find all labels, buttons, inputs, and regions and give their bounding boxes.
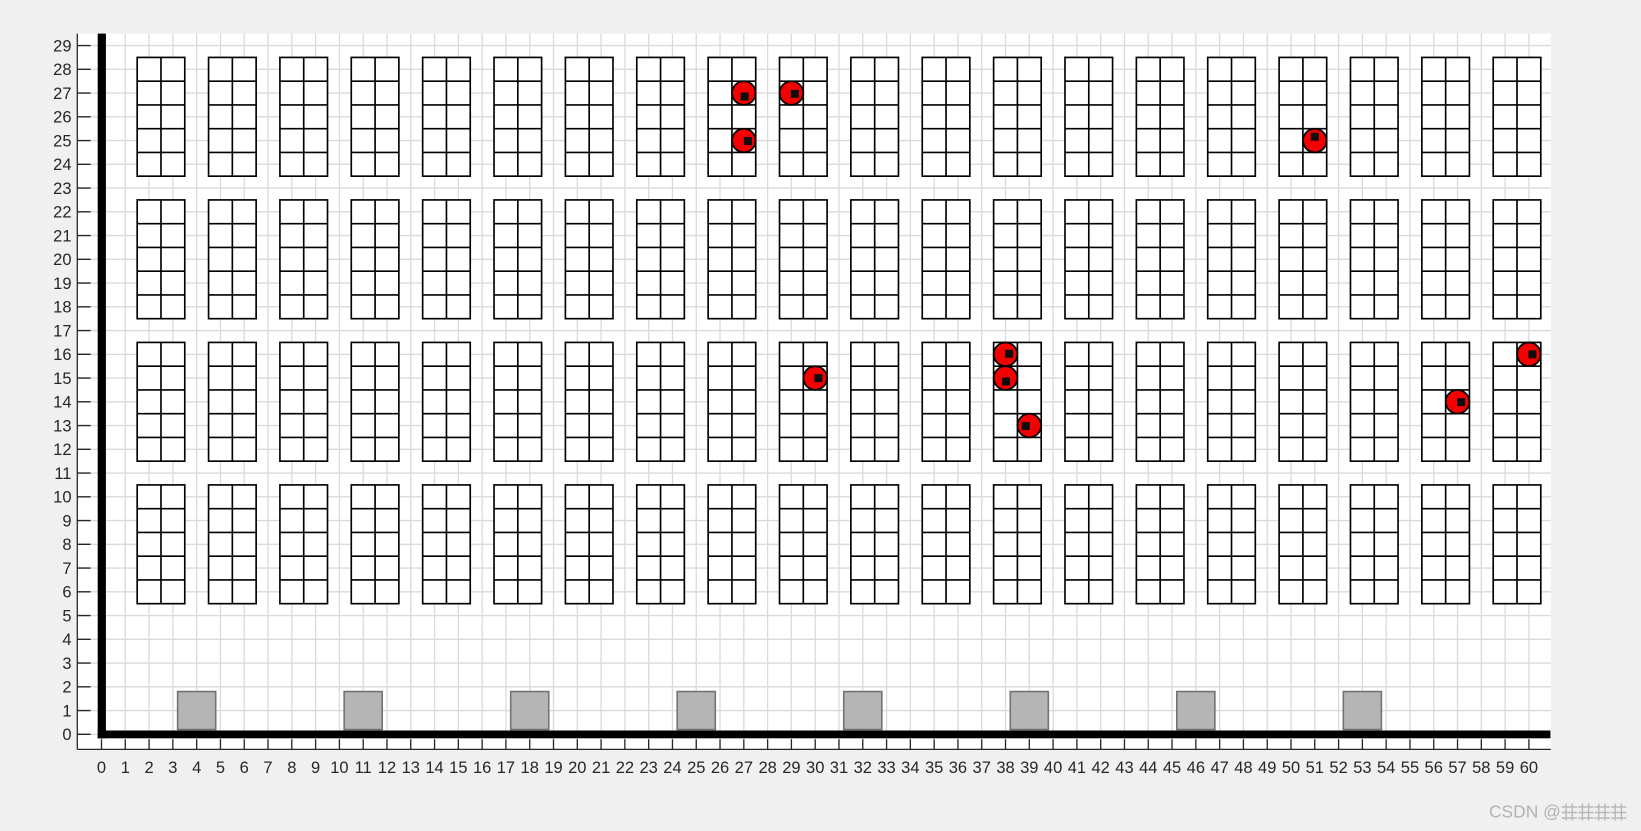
- svg-text:28: 28: [758, 759, 776, 777]
- svg-text:24: 24: [663, 759, 681, 777]
- svg-text:14: 14: [53, 394, 71, 412]
- svg-text:29: 29: [53, 37, 71, 55]
- svg-text:60: 60: [1520, 759, 1538, 777]
- svg-text:7: 7: [62, 560, 71, 578]
- svg-text:52: 52: [1329, 759, 1347, 777]
- svg-text:10: 10: [53, 489, 71, 507]
- svg-text:13: 13: [402, 759, 420, 777]
- svg-text:35: 35: [925, 759, 943, 777]
- svg-text:43: 43: [1115, 759, 1133, 777]
- svg-text:54: 54: [1377, 759, 1395, 777]
- svg-text:59: 59: [1496, 759, 1514, 777]
- svg-text:12: 12: [53, 441, 71, 459]
- svg-text:31: 31: [830, 759, 848, 777]
- svg-text:45: 45: [1163, 759, 1181, 777]
- svg-text:19: 19: [53, 275, 71, 293]
- svg-text:15: 15: [53, 370, 71, 388]
- svg-text:12: 12: [378, 759, 396, 777]
- svg-text:9: 9: [62, 512, 71, 530]
- svg-text:18: 18: [53, 299, 71, 317]
- svg-text:18: 18: [521, 759, 539, 777]
- svg-text:36: 36: [949, 759, 967, 777]
- svg-text:4: 4: [62, 631, 71, 649]
- svg-text:49: 49: [1258, 759, 1276, 777]
- svg-text:11: 11: [355, 759, 372, 777]
- svg-text:3: 3: [62, 655, 71, 673]
- svg-text:1: 1: [62, 702, 71, 720]
- svg-text:34: 34: [901, 759, 919, 777]
- svg-text:41: 41: [1068, 759, 1086, 777]
- svg-text:20: 20: [568, 759, 586, 777]
- svg-text:30: 30: [806, 759, 824, 777]
- svg-text:37: 37: [973, 759, 991, 777]
- svg-text:33: 33: [877, 759, 895, 777]
- svg-text:21: 21: [592, 759, 610, 777]
- svg-text:9: 9: [311, 759, 320, 777]
- svg-text:13: 13: [53, 417, 71, 435]
- svg-text:27: 27: [735, 759, 753, 777]
- svg-text:6: 6: [62, 584, 71, 602]
- svg-text:0: 0: [97, 759, 106, 777]
- svg-text:6: 6: [240, 759, 249, 777]
- svg-text:16: 16: [473, 759, 491, 777]
- svg-text:2: 2: [144, 759, 153, 777]
- svg-text:15: 15: [449, 759, 467, 777]
- svg-text:21: 21: [53, 227, 71, 245]
- svg-text:4: 4: [192, 759, 201, 777]
- svg-text:11: 11: [54, 465, 71, 483]
- svg-text:16: 16: [53, 346, 71, 364]
- svg-text:26: 26: [53, 109, 71, 127]
- svg-text:57: 57: [1448, 759, 1466, 777]
- svg-text:17: 17: [53, 322, 71, 340]
- svg-text:50: 50: [1282, 759, 1300, 777]
- svg-text:14: 14: [425, 759, 443, 777]
- svg-text:10: 10: [330, 759, 348, 777]
- svg-text:3: 3: [168, 759, 177, 777]
- svg-text:46: 46: [1187, 759, 1205, 777]
- svg-text:0: 0: [62, 726, 71, 744]
- svg-text:23: 23: [53, 180, 71, 198]
- svg-text:29: 29: [782, 759, 800, 777]
- svg-text:7: 7: [263, 759, 272, 777]
- svg-text:55: 55: [1401, 759, 1419, 777]
- svg-text:23: 23: [639, 759, 657, 777]
- svg-text:58: 58: [1472, 759, 1490, 777]
- svg-text:19: 19: [544, 759, 562, 777]
- svg-text:22: 22: [53, 204, 71, 222]
- svg-text:32: 32: [854, 759, 872, 777]
- svg-text:25: 25: [53, 132, 71, 150]
- svg-text:48: 48: [1234, 759, 1252, 777]
- svg-text:8: 8: [287, 759, 296, 777]
- svg-text:51: 51: [1306, 759, 1324, 777]
- svg-text:8: 8: [62, 536, 71, 554]
- svg-text:39: 39: [1020, 759, 1038, 777]
- svg-text:25: 25: [687, 759, 705, 777]
- svg-text:28: 28: [53, 61, 71, 79]
- svg-text:24: 24: [53, 156, 71, 174]
- svg-text:5: 5: [216, 759, 225, 777]
- svg-text:26: 26: [711, 759, 729, 777]
- svg-text:53: 53: [1353, 759, 1371, 777]
- svg-text:44: 44: [1139, 759, 1157, 777]
- svg-text:CSDN @: CSDN @: [1489, 802, 1561, 822]
- svg-text:5: 5: [62, 607, 71, 625]
- svg-text:47: 47: [1210, 759, 1228, 777]
- svg-text:38: 38: [996, 759, 1014, 777]
- svg-text:2: 2: [62, 679, 71, 697]
- svg-text:17: 17: [497, 759, 515, 777]
- svg-text:27: 27: [53, 85, 71, 103]
- svg-text:20: 20: [53, 251, 71, 269]
- svg-text:40: 40: [1044, 759, 1062, 777]
- svg-text:56: 56: [1425, 759, 1443, 777]
- svg-text:1: 1: [121, 759, 130, 777]
- svg-text:42: 42: [1092, 759, 1110, 777]
- svg-text:22: 22: [616, 759, 634, 777]
